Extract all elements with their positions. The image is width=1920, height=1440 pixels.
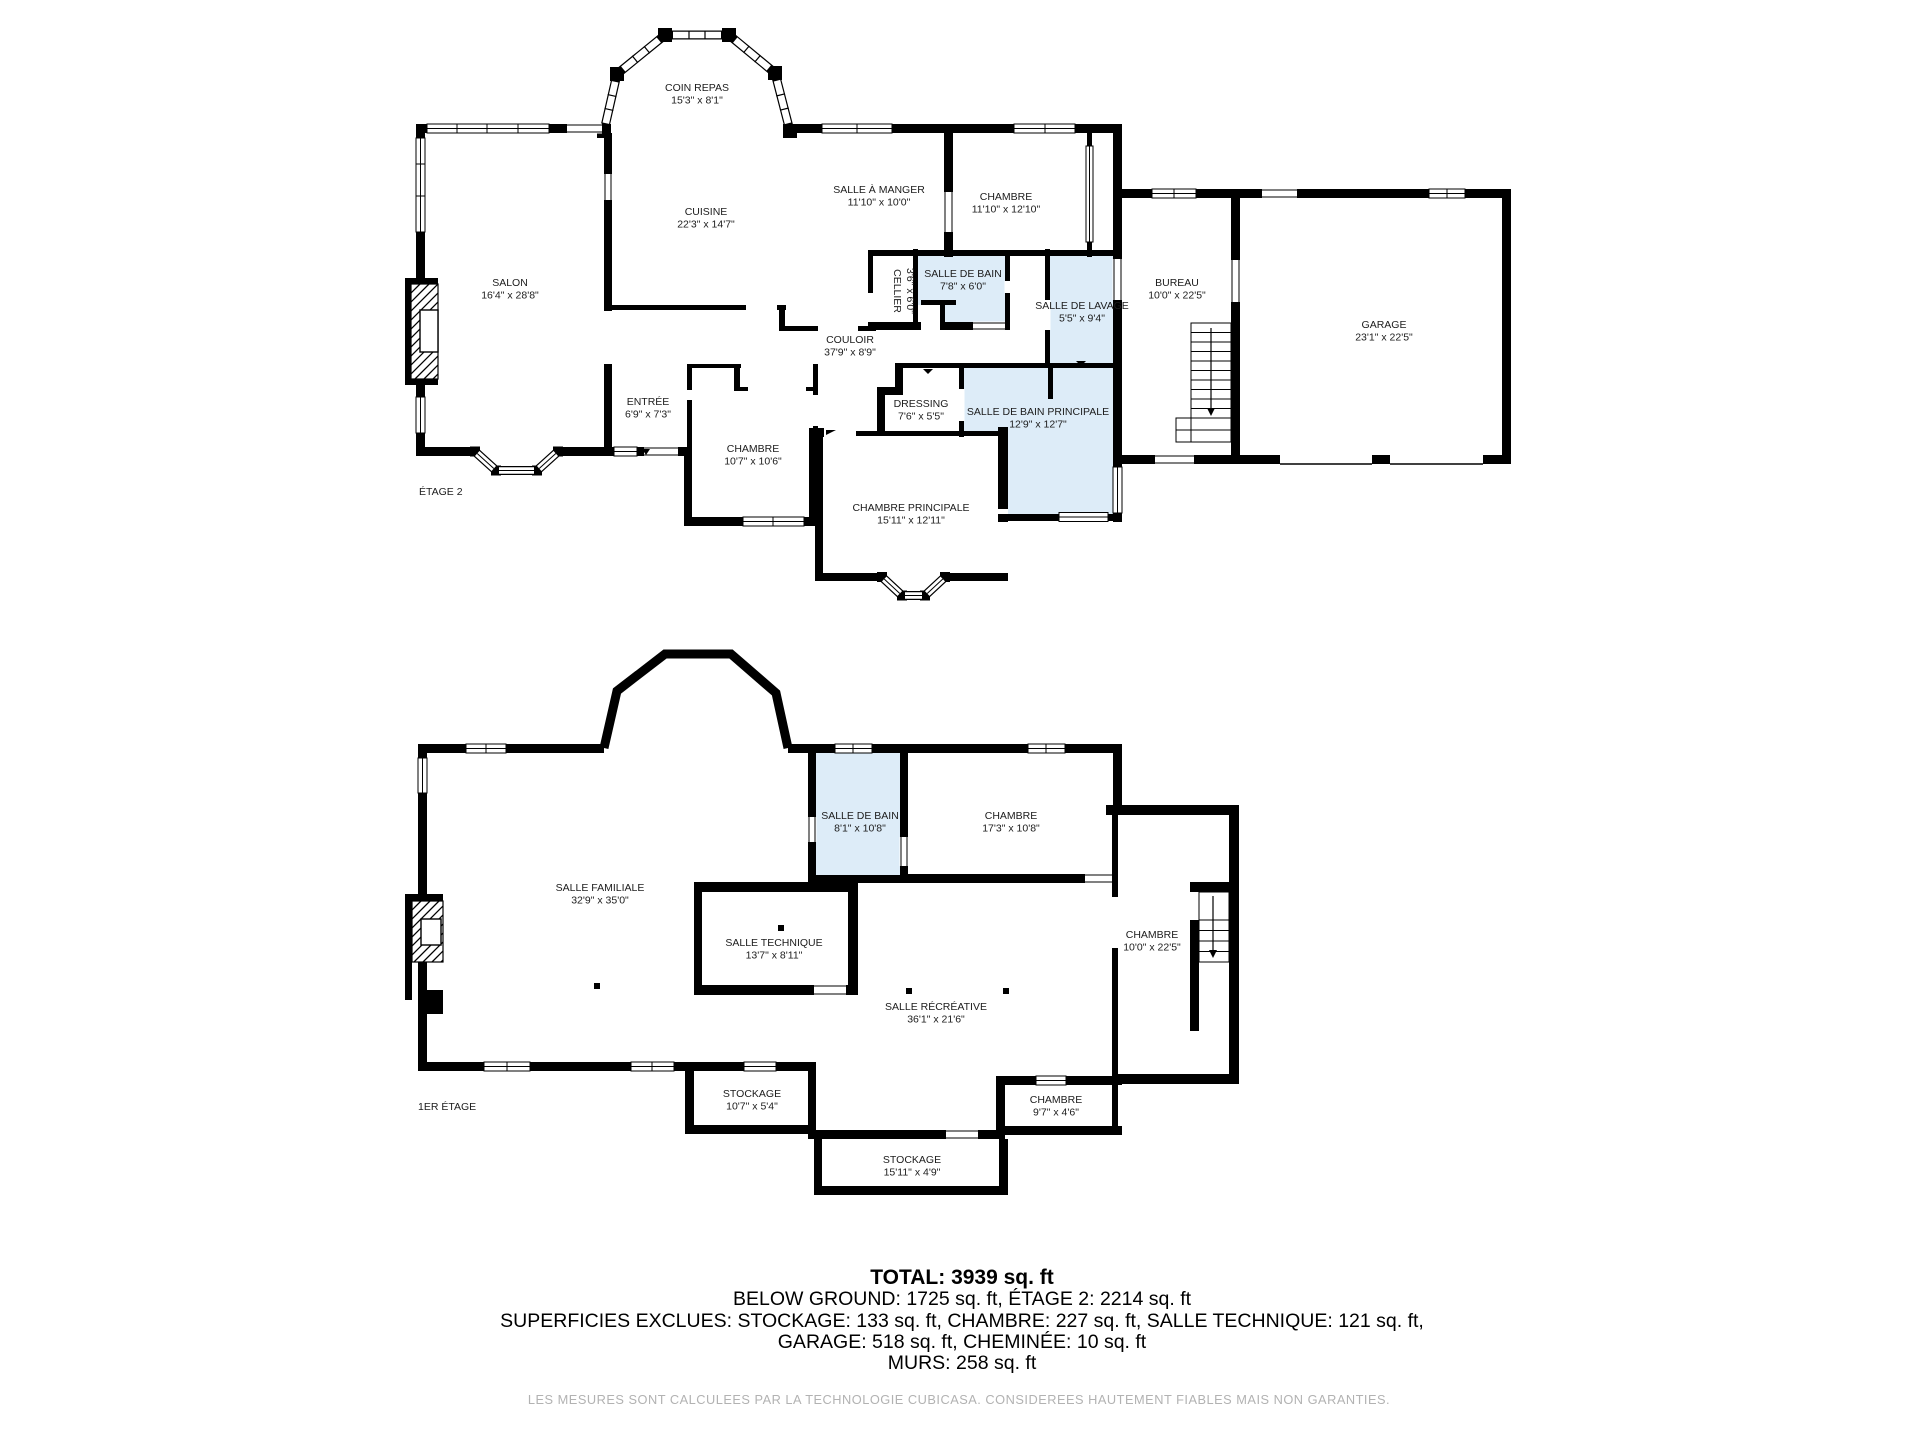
svg-text:SALLE RÉCRÉATIVE: SALLE RÉCRÉATIVE (885, 1000, 987, 1013)
svg-text:GARAGE: GARAGE (1362, 319, 1407, 331)
svg-text:7'8" x 6'0": 7'8" x 6'0" (940, 281, 986, 293)
svg-text:SALON: SALON (492, 277, 528, 289)
svg-text:SALLE À MANGER: SALLE À MANGER (833, 183, 925, 196)
svg-text:10'0" x 22'5": 10'0" x 22'5" (1123, 942, 1181, 954)
svg-text:SALLE DE BAIN: SALLE DE BAIN (924, 268, 1002, 280)
svg-text:CHAMBRE PRINCIPALE: CHAMBRE PRINCIPALE (852, 502, 969, 514)
svg-text:COULOIR: COULOIR (826, 334, 874, 346)
svg-text:LES MESURES SONT CALCULEES PAR: LES MESURES SONT CALCULEES PAR LA TECHNO… (528, 1392, 1390, 1407)
svg-text:CHAMBRE: CHAMBRE (727, 443, 780, 455)
svg-text:COIN REPAS: COIN REPAS (665, 82, 729, 94)
svg-text:SALLE TECHNIQUE: SALLE TECHNIQUE (725, 937, 822, 949)
svg-text:32'9" x 35'0": 32'9" x 35'0" (571, 895, 629, 907)
svg-text:SALLE DE BAIN PRINCIPALE: SALLE DE BAIN PRINCIPALE (967, 406, 1109, 418)
svg-text:CUISINE: CUISINE (685, 206, 728, 218)
svg-text:CHAMBRE: CHAMBRE (1030, 1094, 1083, 1106)
svg-text:TOTAL: 3939 sq. ft: TOTAL: 3939 sq. ft (870, 1266, 1054, 1289)
svg-text:11'10" x 10'0": 11'10" x 10'0" (848, 197, 911, 209)
svg-text:8'1" x 10'8": 8'1" x 10'8" (834, 823, 886, 835)
svg-text:10'0" x 22'5": 10'0" x 22'5" (1148, 290, 1206, 302)
svg-text:11'10" x 12'10": 11'10" x 12'10" (972, 204, 1041, 216)
svg-text:STOCKAGE: STOCKAGE (723, 1088, 781, 1100)
svg-text:3'6" x 6'0": 3'6" x 6'0" (904, 268, 916, 314)
svg-text:BELOW GROUND: 1725 sq. ft, ÉTA: BELOW GROUND: 1725 sq. ft, ÉTAGE 2: 2214… (733, 1287, 1192, 1310)
svg-text:15'11" x 12'11": 15'11" x 12'11" (877, 515, 945, 527)
svg-text:DRESSING: DRESSING (894, 398, 949, 410)
svg-text:17'3" x 10'8": 17'3" x 10'8" (982, 823, 1040, 835)
svg-text:CHAMBRE: CHAMBRE (980, 191, 1033, 203)
svg-text:SALLE DE LAVAGE: SALLE DE LAVAGE (1035, 300, 1129, 312)
svg-text:22'3" x 14'7": 22'3" x 14'7" (677, 219, 735, 231)
svg-text:7'6" x 5'5": 7'6" x 5'5" (898, 411, 944, 423)
svg-text:SUPERFICIES EXCLUES: STOCKAGE:: SUPERFICIES EXCLUES: STOCKAGE: 133 sq. f… (500, 1310, 1424, 1332)
svg-text:STOCKAGE: STOCKAGE (883, 1154, 941, 1166)
svg-text:SALLE FAMILIALE: SALLE FAMILIALE (556, 882, 645, 894)
svg-text:13'7" x 8'11": 13'7" x 8'11" (746, 950, 803, 962)
svg-text:10'7" x 10'6": 10'7" x 10'6" (724, 456, 782, 468)
svg-text:5'5" x 9'4": 5'5" x 9'4" (1059, 313, 1105, 325)
svg-text:GARAGE: 518 sq. ft, CHEMINÉE:: GARAGE: 518 sq. ft, CHEMINÉE: 10 sq. ft (778, 1330, 1147, 1353)
svg-text:23'1" x 22'5": 23'1" x 22'5" (1355, 332, 1413, 344)
svg-text:ENTRÉE: ENTRÉE (627, 395, 670, 408)
svg-text:CHAMBRE: CHAMBRE (1126, 929, 1179, 941)
svg-text:15'3" x 8'1": 15'3" x 8'1" (671, 95, 723, 107)
svg-text:10'7" x 5'4": 10'7" x 5'4" (726, 1101, 778, 1113)
svg-text:9'7" x 4'6": 9'7" x 4'6" (1033, 1107, 1079, 1119)
svg-text:36'1" x 21'6": 36'1" x 21'6" (907, 1014, 965, 1026)
svg-text:16'4" x 28'8": 16'4" x 28'8" (481, 290, 539, 302)
svg-text:15'11" x 4'9": 15'11" x 4'9" (884, 1167, 941, 1179)
svg-text:6'9" x 7'3": 6'9" x 7'3" (625, 409, 671, 421)
svg-text:CHAMBRE: CHAMBRE (985, 810, 1038, 822)
svg-text:MURS: 258 sq. ft: MURS: 258 sq. ft (888, 1352, 1037, 1374)
svg-text:37'9" x 8'9": 37'9" x 8'9" (824, 347, 876, 359)
svg-text:SALLE DE BAIN: SALLE DE BAIN (821, 810, 899, 822)
svg-text:1ER ÉTAGE: 1ER ÉTAGE (418, 1100, 476, 1113)
svg-text:BUREAU: BUREAU (1155, 277, 1199, 289)
svg-text:12'9" x 12'7": 12'9" x 12'7" (1009, 419, 1067, 431)
svg-text:CELLIER: CELLIER (891, 269, 903, 313)
svg-text:ÉTAGE 2: ÉTAGE 2 (419, 485, 463, 498)
